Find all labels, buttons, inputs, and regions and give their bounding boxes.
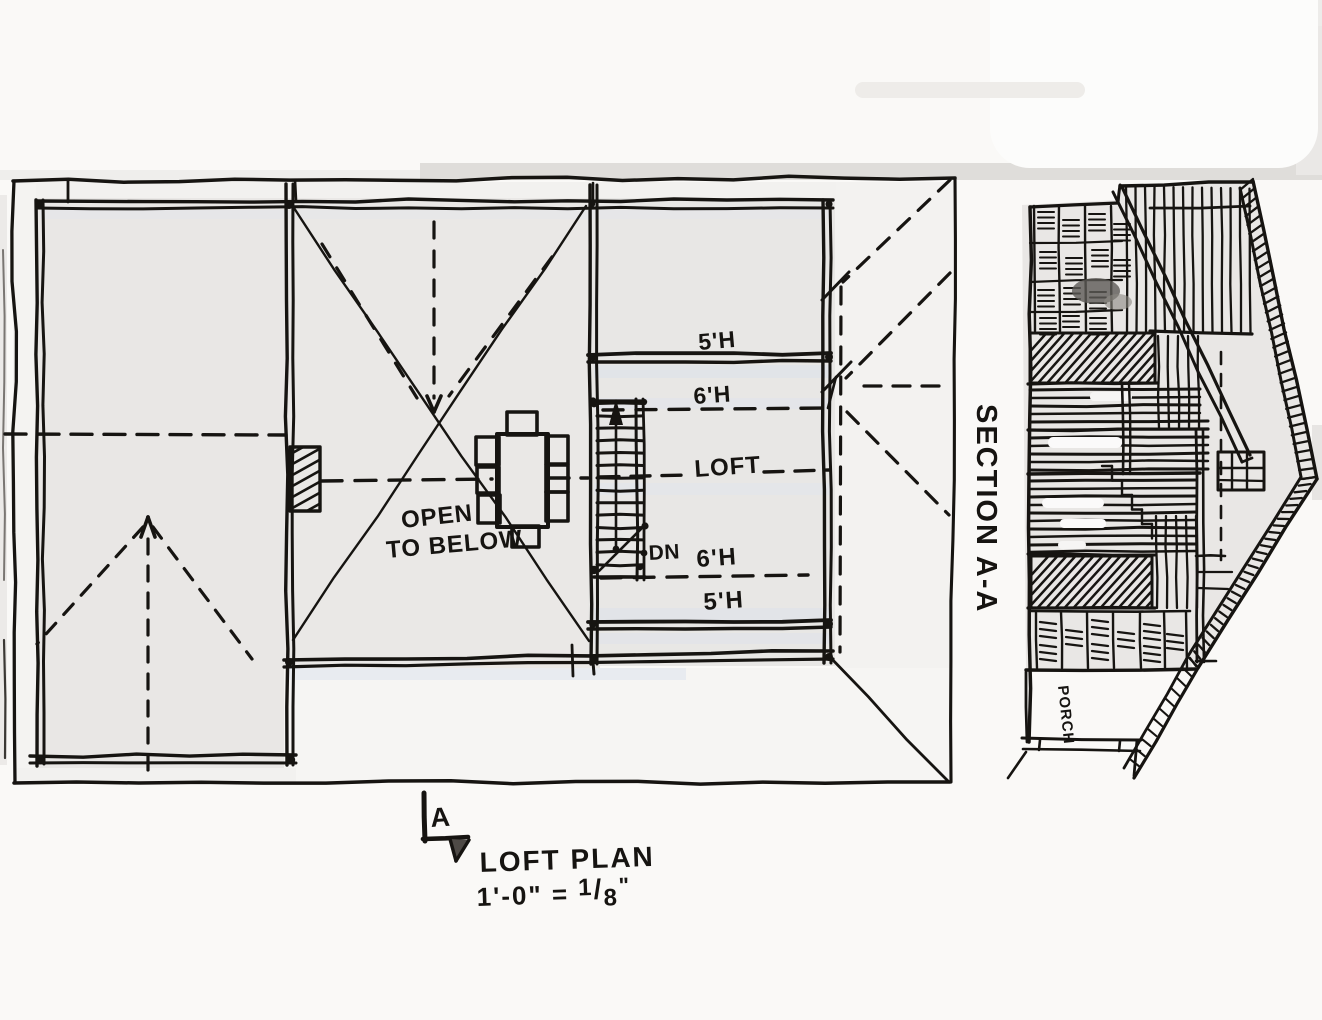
svg-text:LOFT: LOFT — [694, 451, 762, 483]
svg-text:6'H: 6'H — [696, 543, 739, 573]
svg-text:6'H: 6'H — [693, 380, 733, 409]
svg-text:5'H: 5'H — [703, 586, 746, 616]
svg-text:5'H: 5'H — [697, 326, 737, 355]
svg-text:SECTION A-A: SECTION A-A — [970, 404, 1002, 613]
svg-text:DN: DN — [648, 540, 681, 565]
svg-text:A: A — [429, 802, 451, 833]
